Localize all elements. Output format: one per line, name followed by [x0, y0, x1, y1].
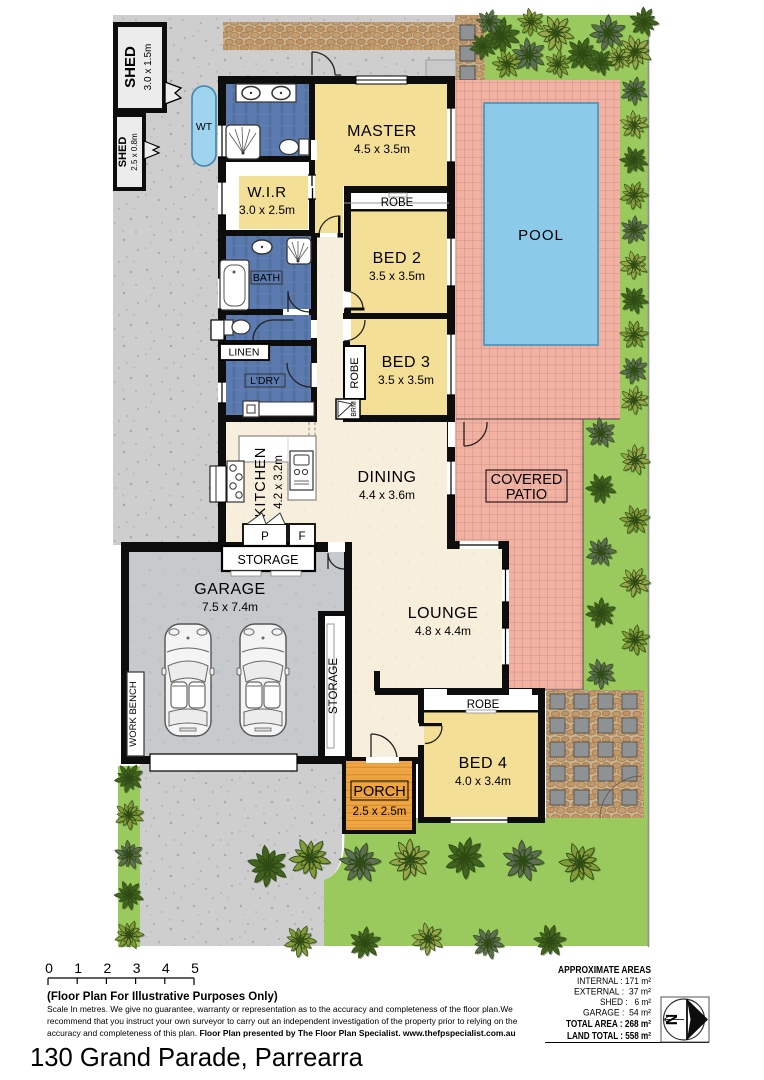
svg-text:BED 4: BED 4 [459, 755, 508, 772]
svg-text:F: F [298, 531, 305, 543]
svg-text:GARAGE: GARAGE [194, 581, 265, 598]
svg-text:WT: WT [196, 121, 213, 133]
svg-text:recommend that you instruct yo: recommend that you instruct your own sur… [47, 1016, 518, 1026]
svg-text:LOUNGE: LOUNGE [408, 605, 479, 622]
svg-text:TOTAL AREA : 268 m²: TOTAL AREA : 268 m² [566, 1019, 652, 1030]
svg-text:N: N [662, 1014, 679, 1026]
svg-text:P: P [261, 531, 269, 543]
svg-text:PORCH: PORCH [353, 784, 405, 800]
svg-text:4.2 x 3.2m: 4.2 x 3.2m [273, 455, 285, 509]
svg-text:COVERED: COVERED [491, 472, 563, 488]
svg-text:4: 4 [162, 960, 170, 976]
svg-text:SHED : 6 m²: SHED : 6 m² [600, 997, 651, 1008]
svg-text:BED 2: BED 2 [373, 250, 422, 267]
svg-text:3.5 x 3.5m: 3.5 x 3.5m [369, 269, 425, 283]
svg-text:ROBE: ROBE [381, 197, 414, 209]
svg-text:BED 3: BED 3 [382, 354, 431, 371]
svg-text:1: 1 [74, 960, 82, 976]
svg-text:3.5 x 3.5m: 3.5 x 3.5m [378, 373, 434, 387]
svg-text:4.8 x 4.4m: 4.8 x 4.4m [415, 624, 471, 638]
svg-text:SHED: SHED [122, 46, 139, 88]
svg-text:130 Grand Parade, Parrearra: 130 Grand Parade, Parrearra [30, 1044, 364, 1072]
svg-text:INTERNAL : 171 m²: INTERNAL : 171 m² [577, 976, 651, 987]
svg-text:2: 2 [104, 960, 112, 976]
svg-text:0: 0 [45, 960, 53, 976]
svg-text:3.0 x 2.5m: 3.0 x 2.5m [239, 203, 295, 217]
svg-text:3: 3 [133, 960, 141, 976]
svg-text:2.5 x 2.5m: 2.5 x 2.5m [353, 806, 407, 818]
svg-text:W.I.R: W.I.R [247, 184, 286, 201]
svg-text:LAND TOTAL : 558 m²: LAND TOTAL : 558 m² [567, 1031, 652, 1042]
svg-text:accuracy and completeness of t: accuracy and completeness of this plan. … [47, 1028, 516, 1038]
svg-text:SHED: SHED [117, 137, 129, 168]
svg-text:4.4 x 3.6m: 4.4 x 3.6m [359, 488, 415, 502]
svg-text:BATH: BATH [253, 272, 280, 284]
svg-text:ROBE: ROBE [349, 357, 361, 388]
svg-text:STORAGE: STORAGE [328, 658, 340, 714]
svg-text:(Floor Plan For Illustrative P: (Floor Plan For Illustrative Purposes On… [47, 991, 278, 1003]
svg-text:WORK BENCH: WORK BENCH [128, 681, 139, 747]
svg-text:4.0 x 3.4m: 4.0 x 3.4m [455, 774, 511, 788]
svg-text:GARAGE : 54 m²: GARAGE : 54 m² [583, 1008, 651, 1019]
svg-text:BRM: BRM [351, 401, 358, 417]
svg-text:7.5 x 7.4m: 7.5 x 7.4m [202, 600, 258, 614]
svg-text:2.5 x 0.8m: 2.5 x 0.8m [130, 133, 139, 171]
svg-text:Scale In metres. We give no gu: Scale In metres. We give no guarantee, w… [47, 1004, 513, 1014]
svg-text:APPROXIMATE AREAS: APPROXIMATE AREAS [558, 964, 651, 976]
svg-text:EXTERNAL : 37 m²: EXTERNAL : 37 m² [574, 987, 651, 998]
svg-text:POOL: POOL [518, 227, 564, 244]
svg-text:STORAGE: STORAGE [238, 553, 299, 567]
svg-text:3.0 x 1.5m: 3.0 x 1.5m [143, 44, 154, 91]
svg-text:ROBE: ROBE [467, 699, 500, 711]
svg-text:KITCHEN: KITCHEN [253, 447, 269, 518]
svg-text:MASTER: MASTER [347, 123, 417, 140]
svg-text:LINEN: LINEN [229, 347, 260, 359]
svg-text:5: 5 [191, 960, 199, 976]
svg-text:4.5 x 3.5m: 4.5 x 3.5m [354, 142, 410, 156]
svg-text:L'DRY: L'DRY [250, 375, 280, 387]
svg-text:PATIO: PATIO [506, 487, 547, 503]
svg-text:DINING: DINING [358, 469, 417, 486]
